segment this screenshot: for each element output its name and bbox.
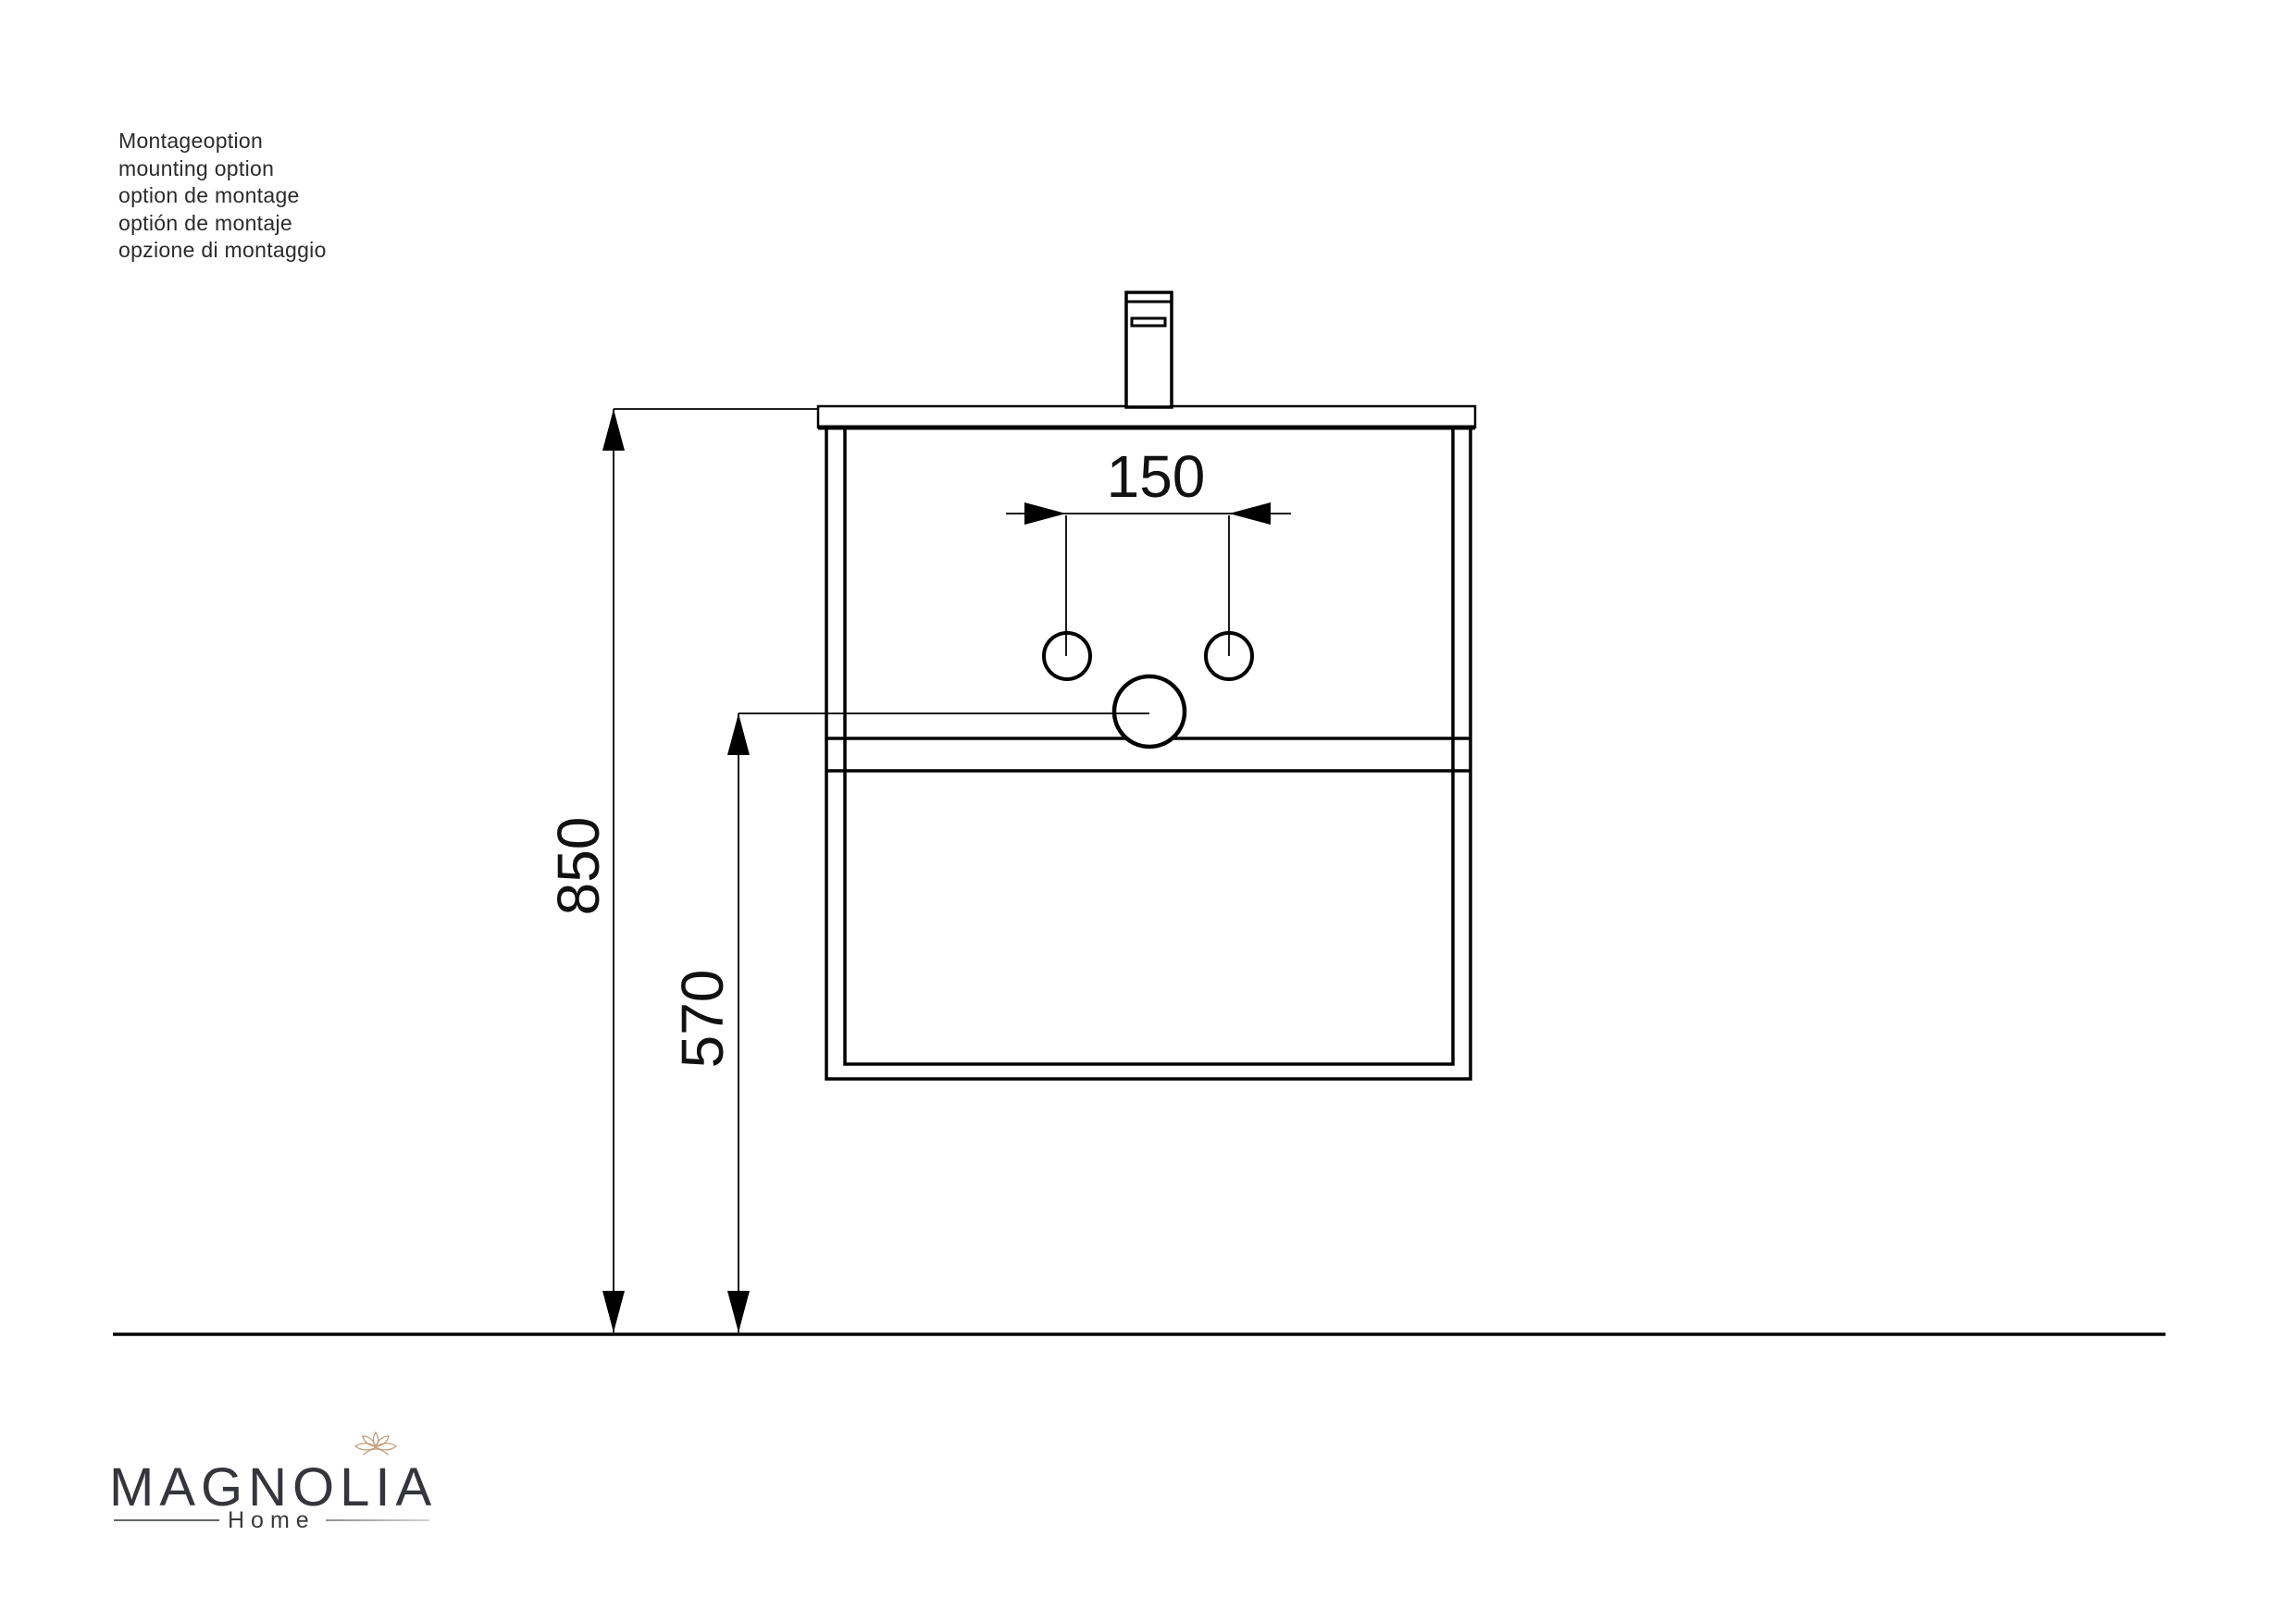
dim-850-label: 850 bbox=[545, 817, 612, 916]
faucet bbox=[1126, 292, 1172, 407]
dim-150-arrow-left bbox=[1024, 502, 1066, 525]
cabinet-outer-outline bbox=[826, 427, 1471, 1079]
dim-570-label: 570 bbox=[669, 970, 736, 1069]
faucet-body bbox=[1126, 292, 1172, 407]
dim-drain-height: 570 bbox=[669, 713, 750, 1332]
dim-850-arrow-top bbox=[602, 409, 625, 451]
dim-850-arrow-bottom bbox=[602, 1291, 625, 1332]
vanity-technical-drawing: 150 850 570 bbox=[0, 0, 2296, 1623]
drawing-sheet: Montageoption mounting option option de … bbox=[0, 0, 2296, 1623]
washbasin-top bbox=[818, 406, 1475, 427]
brand-subtitle: Home bbox=[228, 1507, 316, 1534]
dim-hole-spacing: 150 bbox=[1006, 443, 1291, 656]
logo-divider-left bbox=[114, 1519, 219, 1521]
logo-divider-right bbox=[326, 1519, 429, 1521]
drain-hole bbox=[1114, 676, 1185, 747]
dim-150-label: 150 bbox=[1107, 443, 1206, 510]
dim-570-arrow-top bbox=[727, 713, 750, 755]
mounting-hole-left bbox=[1044, 633, 1090, 679]
dim-150-arrow-right bbox=[1229, 502, 1271, 525]
dim-570-arrow-bottom bbox=[727, 1291, 750, 1332]
dim-mount-height: 850 bbox=[545, 409, 818, 1332]
cabinet-body bbox=[826, 427, 1471, 1079]
